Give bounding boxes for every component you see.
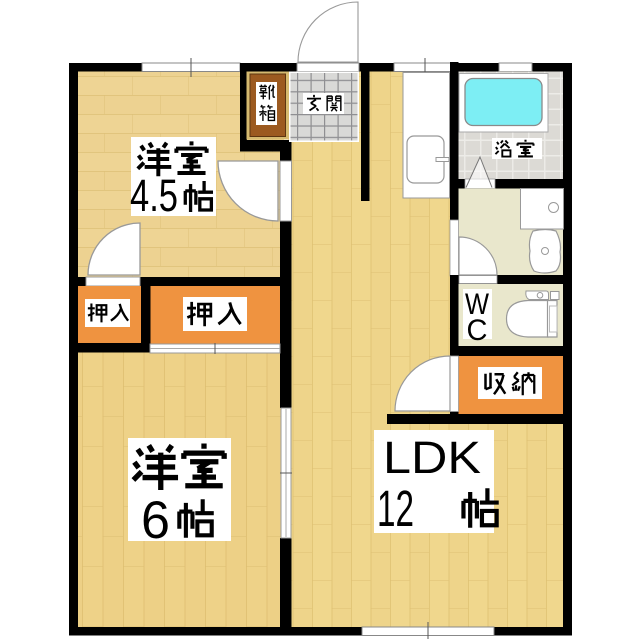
svg-text:6: 6 xyxy=(141,491,170,550)
svg-text:4.5: 4.5 xyxy=(130,170,178,221)
svg-text:LDK: LDK xyxy=(383,432,481,483)
svg-text:C: C xyxy=(467,314,488,347)
svg-text:12: 12 xyxy=(377,480,414,537)
